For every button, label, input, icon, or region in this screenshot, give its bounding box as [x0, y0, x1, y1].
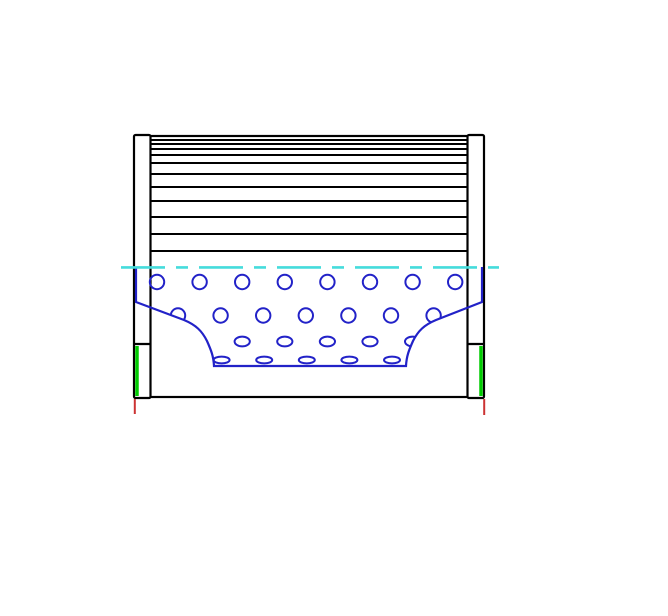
filter-element-drawing	[0, 0, 668, 616]
drawing-canvas	[0, 0, 668, 616]
